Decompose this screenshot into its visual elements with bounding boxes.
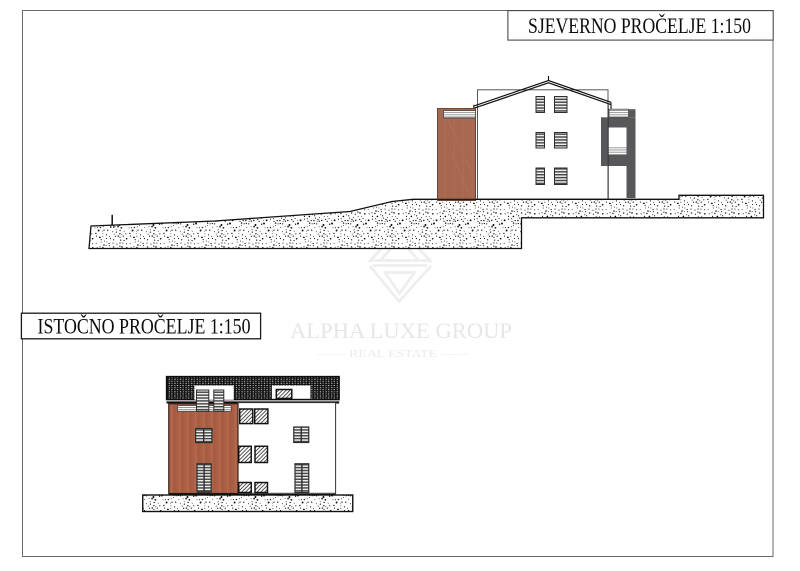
svg-text:—— REAL ESTATE ——: —— REAL ESTATE ——: [317, 348, 470, 360]
svg-text:SJEVERNO PROČELJE 1:150: SJEVERNO PROČELJE 1:150: [528, 13, 751, 38]
svg-text:ISTOČNO PROČELJE 1:150: ISTOČNO PROČELJE 1:150: [38, 314, 251, 339]
svg-text:ALPHA LUXE GROUP: ALPHA LUXE GROUP: [290, 318, 512, 343]
